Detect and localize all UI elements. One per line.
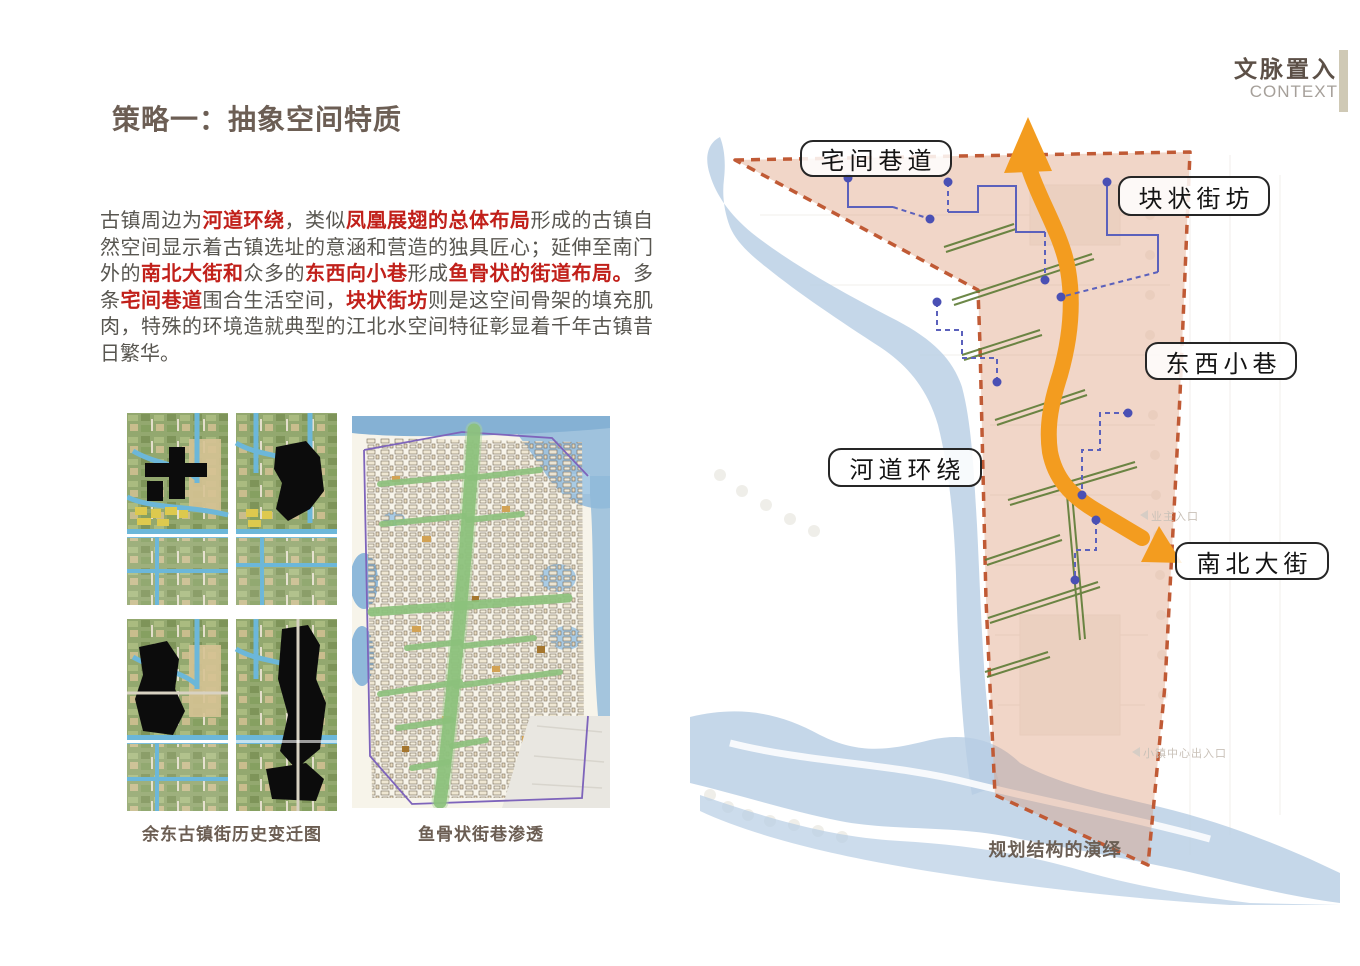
label-north-south-street: 南北大街 xyxy=(1175,542,1329,580)
entrance-triangle-icon xyxy=(1132,747,1140,757)
satellite-panel xyxy=(236,413,337,605)
satellite-panel xyxy=(127,619,228,811)
left-figure-caption: 余东古镇街历史变迁图 xyxy=(127,820,337,845)
fishbone-map-figure xyxy=(352,416,610,808)
historical-maps-figure xyxy=(127,413,337,811)
satellite-panel xyxy=(127,413,228,605)
satellite-panel xyxy=(236,619,337,811)
entrance-triangle-icon xyxy=(1140,510,1148,520)
header-accent-bar xyxy=(1339,50,1348,112)
planning-structure-diagram xyxy=(690,95,1340,905)
faint-entrance-label: 业主入口 xyxy=(1140,508,1199,524)
label-block-neighborhoods: 块状街坊 xyxy=(1118,176,1270,216)
label-river-ring: 河道环绕 xyxy=(828,448,982,487)
label-east-west-lanes: 东西小巷 xyxy=(1145,342,1297,380)
slide-page: 文脉置入 CONTEXT 策略一：抽象空间特质 古镇周边为河道环绕，类似凤凰展翅… xyxy=(0,0,1360,966)
page-title: 文脉置入 xyxy=(1038,50,1338,84)
intro-paragraph: 古镇周边为河道环绕，类似凤凰展翅的总体布局形成的古镇自然空间显示着古镇选址的意涵… xyxy=(100,208,653,367)
label-house-lanes: 宅间巷道 xyxy=(800,140,952,177)
faint-center-entrance-label: 小镇中心出入口 xyxy=(1132,745,1227,761)
right-figure-caption: 鱼骨状街巷渗透 xyxy=(352,820,610,845)
strategy-heading: 策略一：抽象空间特质 xyxy=(112,98,402,138)
diagram-caption: 规划结构的演绎 xyxy=(955,836,1155,862)
